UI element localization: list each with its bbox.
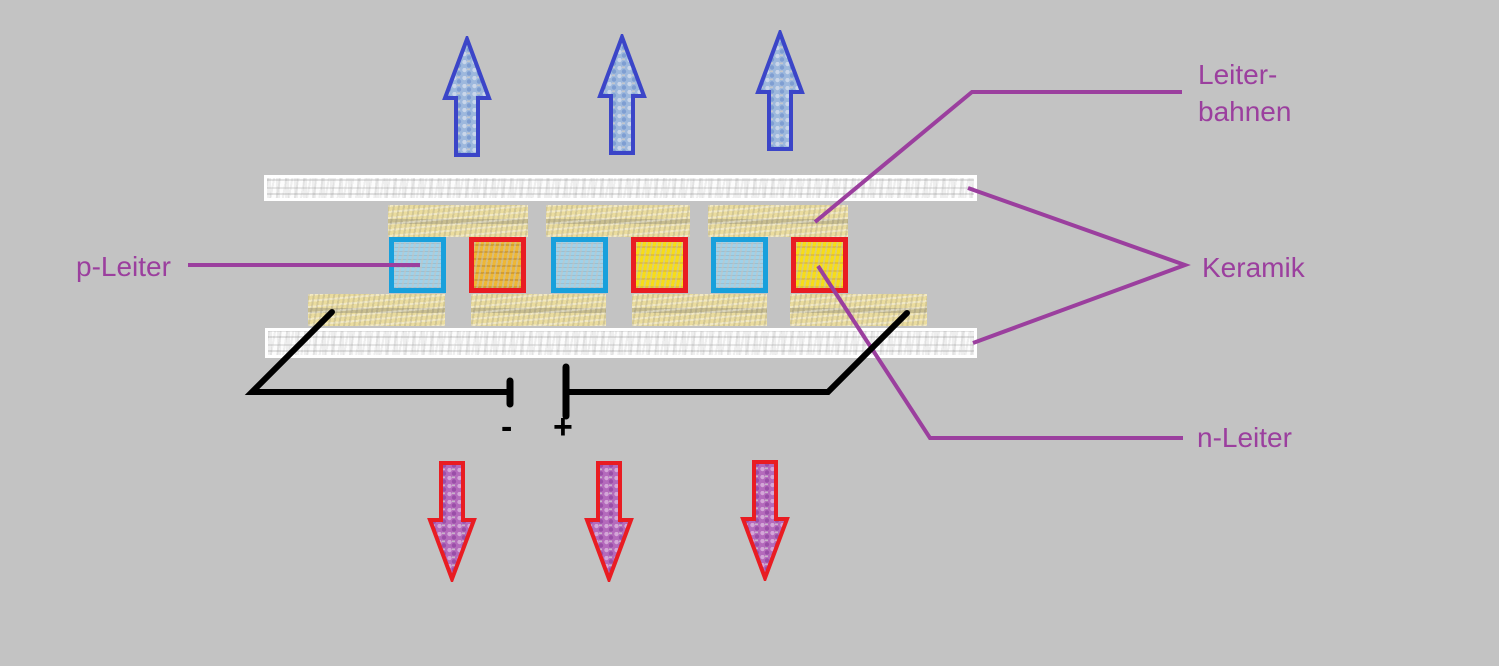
n-leiter-leader-line — [818, 266, 1183, 438]
n-leiter-label: n-Leiter — [1197, 419, 1292, 456]
leiterbahnen-leader-line — [815, 92, 1182, 222]
minus-sign-label: - — [501, 410, 512, 444]
p-leiter-label: p-Leiter — [76, 248, 171, 285]
keramik-leader-line — [968, 188, 1185, 343]
circuit-wire-left — [252, 312, 510, 392]
leiterbahnen-label-line1: Leiter- — [1198, 56, 1291, 93]
peltier-diagram: p-Leiter Leiter- bahnen Keramik n-Leiter… — [0, 0, 1499, 666]
leiterbahnen-label-line2: bahnen — [1198, 93, 1291, 130]
leiterbahnen-label: Leiter- bahnen — [1198, 56, 1291, 130]
plus-sign-label: + — [553, 410, 573, 444]
keramik-label: Keramik — [1202, 249, 1305, 286]
